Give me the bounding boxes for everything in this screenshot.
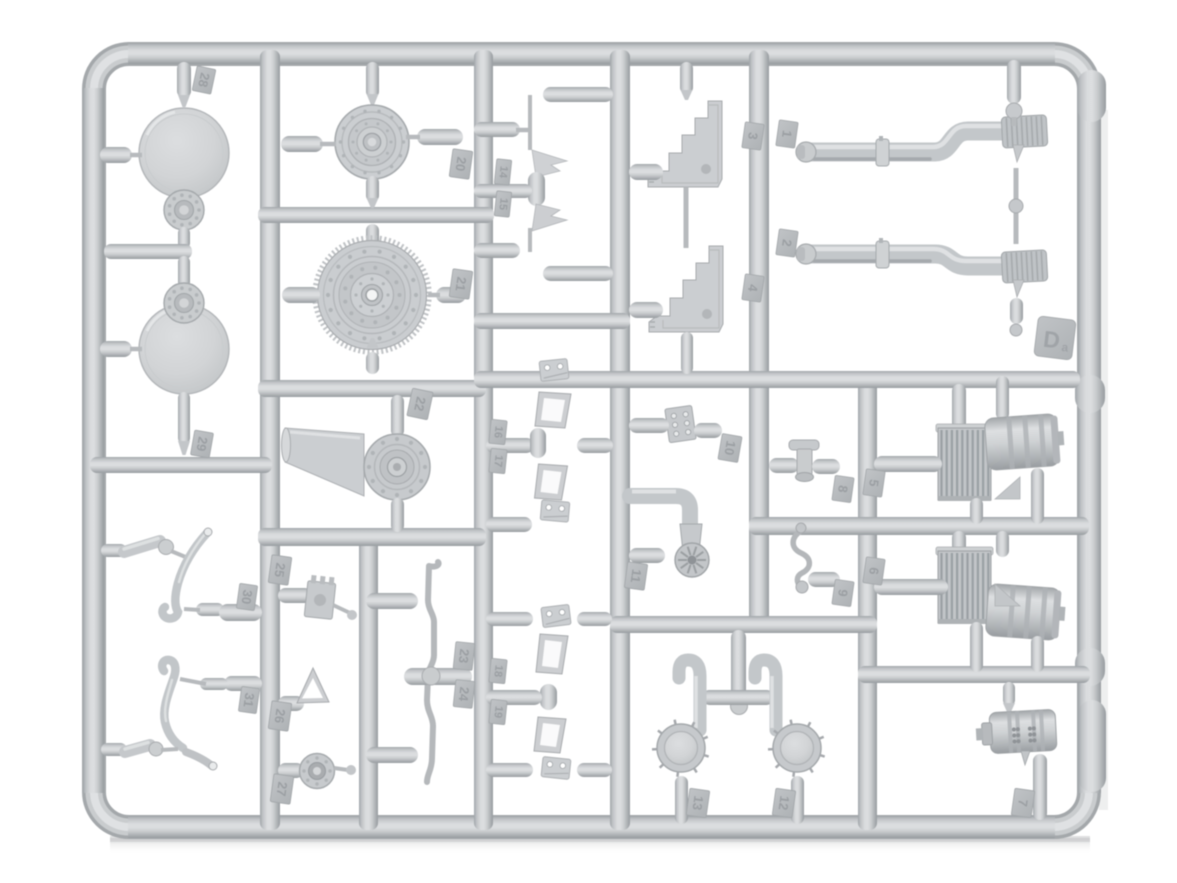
svg-text:15: 15 — [496, 197, 509, 210]
svg-text:24: 24 — [456, 686, 473, 703]
svg-text:30: 30 — [239, 589, 256, 605]
svg-text:19: 19 — [491, 705, 504, 718]
svg-text:18: 18 — [491, 664, 504, 677]
svg-text:12: 12 — [776, 795, 793, 811]
svg-text:29: 29 — [193, 436, 210, 453]
svg-text:17: 17 — [491, 454, 504, 467]
svg-text:13: 13 — [690, 795, 707, 811]
svg-text:14: 14 — [496, 165, 509, 179]
svg-text:28: 28 — [195, 71, 213, 88]
svg-text:22: 22 — [411, 395, 429, 412]
svg-text:27: 27 — [274, 781, 291, 797]
svg-text:26: 26 — [272, 708, 289, 724]
svg-text:D: D — [1042, 326, 1062, 354]
svg-text:31: 31 — [241, 692, 258, 708]
svg-text:23: 23 — [456, 648, 472, 664]
svg-text:20: 20 — [453, 156, 470, 172]
svg-text:21: 21 — [453, 276, 470, 292]
svg-text:25: 25 — [272, 562, 289, 578]
svg-text:10: 10 — [721, 440, 738, 457]
svg-text:11: 11 — [628, 568, 645, 584]
svg-text:16: 16 — [491, 425, 504, 438]
